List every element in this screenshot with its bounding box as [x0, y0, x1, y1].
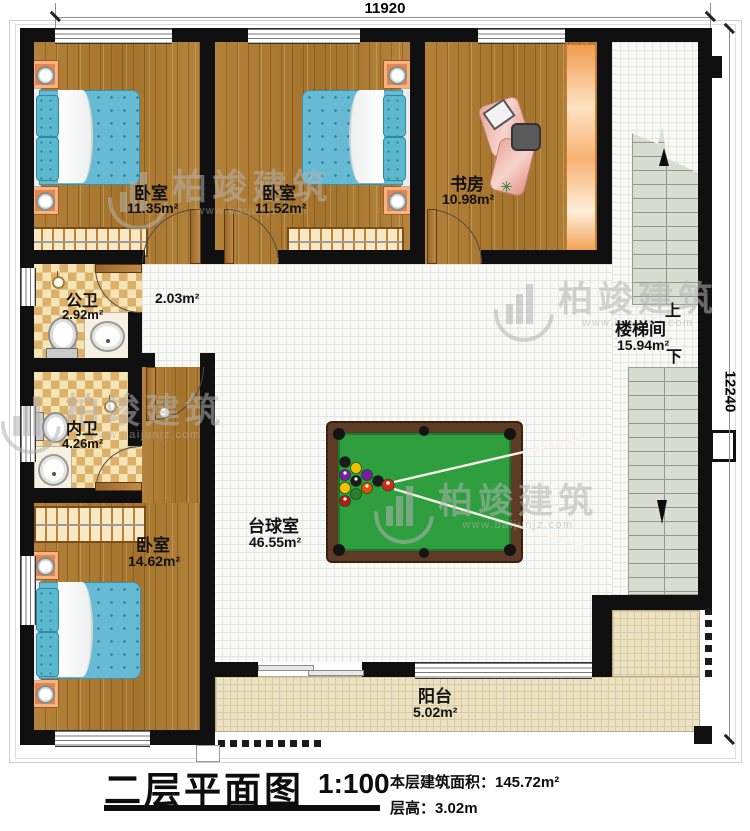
window-study: [478, 28, 565, 44]
wall-billiard-bottom-a: [215, 662, 258, 677]
bedroom1-blanket: [58, 90, 93, 183]
dim-width: 11920: [345, 0, 425, 17]
study-plant: ✳: [500, 178, 513, 196]
public-bath-light-icon: [52, 276, 65, 289]
railing-post: [230, 740, 237, 747]
wall-vestibule-top: [128, 353, 155, 367]
window-bedroom3-bottom: [55, 730, 150, 747]
stairwell-area: 15.94m²: [617, 337, 669, 353]
drawing-scale: 1:100: [318, 768, 390, 800]
stairwell-up-label: 上: [665, 297, 681, 321]
bedroom2-nightstand-bottom: [383, 186, 411, 215]
stairs-up-arrow: [659, 148, 669, 166]
bedroom2-pillow-2: [383, 137, 406, 181]
bedroom2-pillow-1: [383, 95, 406, 137]
bedroom2-area: 11.52m²: [255, 200, 306, 216]
wall-billiard-bottom-b: [362, 662, 415, 677]
brand-logo-icon: [498, 280, 550, 332]
study-chair: [511, 123, 541, 151]
railing-post: [242, 740, 249, 747]
wall-bedroom2-study-divider: [410, 28, 425, 264]
railing-post: [266, 740, 273, 747]
window-bedroom3-left: [20, 556, 36, 625]
wall-bedroom1-2-divider: [200, 28, 215, 264]
bedroom1-area: 11.35m²: [127, 200, 178, 216]
railing-post: [705, 620, 712, 627]
window-public-bath: [20, 268, 36, 306]
private-bath-sink: [38, 454, 69, 486]
door-public-bath: [95, 264, 142, 273]
wall-study-stair-divider: [597, 28, 612, 264]
billiard-room-area: 46.55m²: [249, 534, 301, 550]
wall-stair-bottom: [595, 595, 712, 610]
watermark: 柏竣建筑www.baijunjz.com: [378, 482, 598, 534]
door-study: [427, 209, 437, 264]
title-underline: [104, 805, 380, 811]
railing-post: [278, 740, 285, 747]
railing-post: [705, 645, 712, 652]
railing-post: [254, 740, 261, 747]
stairwell-down-label: 下: [666, 343, 682, 367]
railing-post: [290, 740, 297, 747]
bedroom3-area: 14.62m²: [128, 553, 180, 569]
wall-left: [20, 28, 34, 745]
window-bedroom1: [55, 28, 172, 44]
hallway-area: 2.03m²: [155, 290, 199, 306]
bedroom1-pillow-1: [36, 95, 59, 137]
bedroom1-nightstand-bottom: [31, 186, 59, 215]
wall-bedroom1-bottom: [20, 250, 145, 264]
door-private-bath: [95, 482, 142, 491]
bedroom3-pillow-1: [36, 588, 59, 632]
window-stair-bay: [710, 430, 736, 462]
bedroom3-blanket: [58, 582, 93, 677]
wall-bedroom12-bottom: [200, 250, 224, 264]
study-cabinet: [566, 44, 596, 254]
dim-height: 12240: [722, 362, 739, 422]
bedroom3-nightstand-bottom: [31, 679, 59, 708]
study-area: 10.98m²: [442, 191, 494, 207]
wall-study-bottom: [481, 250, 612, 264]
bedroom3-pillow-2: [36, 632, 59, 677]
railing-post: [314, 740, 321, 747]
window-billiard: [415, 662, 592, 679]
floor-area-note: 本层建筑面积：145.72m²: [390, 771, 559, 792]
wall-bedroom2-bottom: [278, 250, 425, 264]
watermark: 柏竣建筑www.baijunjz.com: [5, 392, 225, 444]
railing-post: [302, 740, 309, 747]
dim-line-top: [55, 17, 711, 18]
wall-right-pier: [712, 56, 722, 78]
brand-logo-icon: [5, 392, 57, 444]
wall-bath-divider: [20, 358, 142, 372]
railing-post: [705, 633, 712, 640]
window-bedroom2: [248, 28, 360, 44]
bedroom2-nightstand-top: [383, 60, 411, 89]
balcony-sliding-door-left: [258, 665, 314, 671]
bedroom1-pillow-2: [36, 137, 59, 181]
wall-corner-balcony: [694, 726, 712, 744]
stairs-down-arrow: [657, 500, 667, 524]
balcony-sliding-door-right: [308, 670, 364, 676]
public-bath-area: 2.92m²: [62, 307, 103, 322]
watermark: 柏竣建筑www.baijunjz.com: [498, 280, 718, 332]
private-bath-area: 4.26m²: [62, 436, 103, 451]
brand-logo-icon: [378, 482, 430, 534]
bedroom3-wardrobe: [34, 506, 146, 543]
balcony-area: 5.02m²: [413, 704, 457, 720]
bedroom2-blanket: [349, 90, 384, 183]
floor-height-note: 层高：3.02m: [390, 797, 478, 818]
floor-plan-canvas: ✳: [0, 0, 750, 831]
railing-post: [705, 658, 712, 665]
railing-post: [705, 670, 712, 677]
railing-post: [705, 608, 712, 615]
stairs-lower-flight: [628, 367, 700, 595]
balcony-floor-bottom: [215, 676, 700, 732]
bedroom1-nightstand-top: [31, 60, 59, 89]
public-bath-toilet-bowl: [48, 317, 78, 352]
public-bath-sink: [90, 321, 125, 352]
